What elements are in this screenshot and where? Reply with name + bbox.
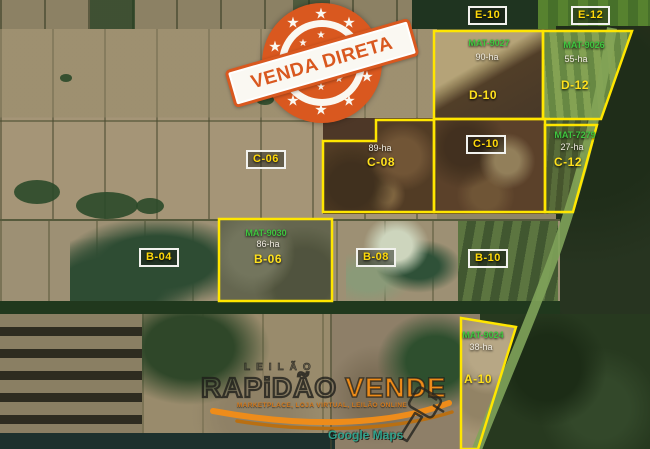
google-maps-attribution: Google Maps [328,428,403,442]
parcel-d12-name: D-12 [561,78,589,92]
star-icon: ★ [317,83,326,93]
lot-label-e12: E-12 [571,6,610,25]
star-icon: ★ [317,31,326,41]
parcel-d10-mat: MAT-9027 [468,38,509,48]
lot-label-b04: B-04 [139,248,179,267]
swoosh-curve [213,403,449,422]
parcel-a10-mat: MAT-9024 [462,330,503,340]
lot-label-c10: C-10 [466,135,506,154]
parcel-d12-area: 55-ha [564,54,587,64]
parcel-c08-name: C-08 [367,155,395,169]
lot-label-b10: B-10 [468,249,508,268]
parcel-d10-area: 90-ha [475,52,498,62]
parcel-c12-name: C-12 [554,155,582,169]
parcel-c08-area: 89-ha [368,143,391,153]
parcel-b06-mat: MAT-9030 [245,228,286,238]
parcel-d12-mat: MAT-9026 [563,40,604,50]
parcel-b06-area: 86-ha [256,239,279,249]
venda-direta-stamp: ★ ★ ★ ★ ★ ★ ★ ★ ★ ★ ★ ★ ★ ★ ★ ★ ★ ★ VEND… [262,3,382,123]
lot-label-c06: C-06 [246,150,286,169]
parcel-b06-name: B-06 [254,252,282,266]
parcel-a10-name: A-10 [464,372,492,386]
parcel-a10-area: 38-ha [469,342,492,352]
lot-label-e10: E-10 [468,6,507,25]
lot-label-b08: B-08 [356,248,396,267]
auction-map-flyer: E-10 E-12 C-06 C-10 B-04 B-08 B-10 MAT-9… [0,0,650,449]
parcel-c12-area: 27-ha [560,142,583,152]
parcel-c12-mat: MAT-7279 [554,130,595,140]
parcel-d10-name: D-10 [469,88,497,102]
